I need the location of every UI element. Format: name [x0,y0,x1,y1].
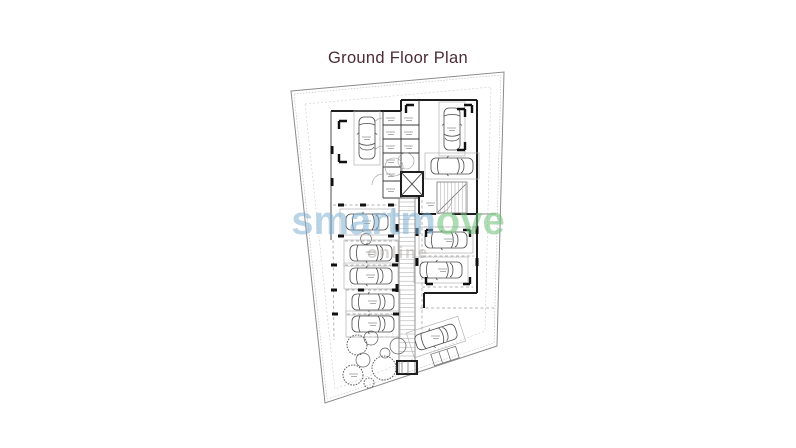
tree-icon [364,378,374,388]
room-label-mark [404,118,413,121]
tree-icon [356,353,370,367]
room-label-mark [386,132,395,135]
corner-bracket [339,154,347,162]
room-label-mark [386,189,395,192]
wall-pier [331,264,337,267]
wall-pier [416,258,419,266]
parked-cars-layer [340,102,479,358]
wall-pier [332,313,338,316]
corner-bracket [406,105,414,113]
room-label-mark [426,203,435,206]
parked-car [344,263,398,289]
room-label-mark [404,146,413,149]
wall-pier [476,258,479,266]
wall-pier [358,289,364,292]
room-label-mark [349,374,358,377]
wall-pier [393,313,399,316]
parked-car [340,209,394,235]
wall-pier [388,235,394,238]
driveway-ramp [397,198,417,374]
wall-pier [331,178,334,186]
wall-pier [392,264,398,267]
room-label-mark [386,146,395,149]
room-label-mark [404,132,413,135]
floor-plan-drawing [0,0,796,448]
wall-pier [388,204,394,207]
wall-pier [338,204,344,207]
wall-pier [338,235,344,238]
site-boundary [291,72,504,403]
floor-plan-page: Ground Floor Plan [0,0,796,448]
wall-pier [360,204,366,207]
wall-pier [331,289,337,292]
wall-pier [396,284,399,292]
room-label-mark [386,118,395,121]
tree-icon [364,331,378,345]
tree-icon [372,356,396,380]
lift-shaft [401,172,423,196]
wall-pier [396,224,399,232]
corner-bracket [463,277,470,284]
wall-pier [331,146,334,154]
parked-car [354,111,380,165]
parked-car [344,240,398,266]
wall-pier [396,254,399,262]
tree-icon [390,338,406,354]
corner-bracket [339,121,347,129]
wall-pier [416,228,419,236]
parked-car [425,153,479,179]
wall-pier [476,226,479,234]
staircase [437,182,467,213]
